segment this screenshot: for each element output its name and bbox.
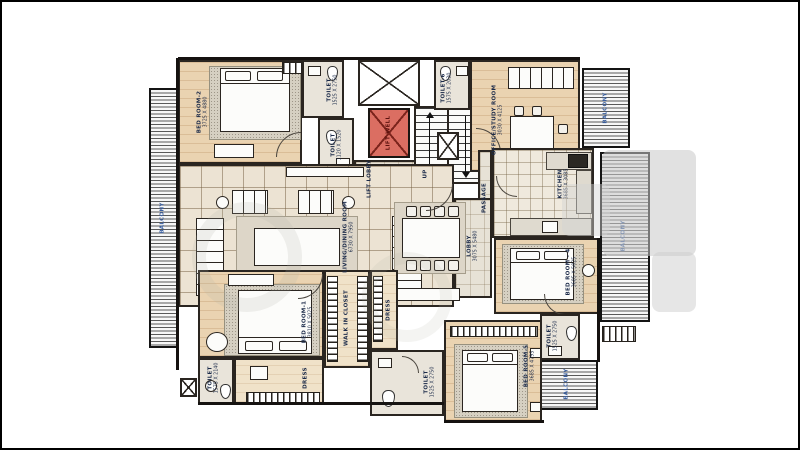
wardrobe-icon xyxy=(373,276,383,342)
dresser-icon xyxy=(250,366,268,380)
armchair-icon xyxy=(298,190,334,214)
pillow-icon xyxy=(245,341,273,351)
room-toilet-bl xyxy=(198,358,234,404)
watermark-shape xyxy=(652,252,696,312)
room-bedroom-4 xyxy=(494,238,600,314)
room-toilet-6 xyxy=(434,60,470,110)
toilet-icon xyxy=(220,384,231,399)
pouf-icon xyxy=(582,264,595,277)
bed-icon xyxy=(220,68,290,132)
room-bedroom-2 xyxy=(178,60,302,164)
room-kitchen xyxy=(492,148,594,238)
wall-right xyxy=(597,238,600,362)
duct-shaft-xbox xyxy=(358,60,420,106)
tv-console-icon xyxy=(286,167,364,177)
dining-chair-icon xyxy=(448,206,459,217)
pillow-icon xyxy=(492,353,513,362)
lift-well xyxy=(368,108,410,158)
kitchen-tall-unit xyxy=(576,170,592,214)
stove-icon xyxy=(568,154,588,168)
dining-table-icon xyxy=(402,218,460,258)
room-toilet-bc xyxy=(370,350,444,416)
sink-icon xyxy=(456,66,468,76)
room-toilet-r xyxy=(540,314,580,360)
arrow-down-icon xyxy=(462,172,470,178)
bed-icon xyxy=(510,248,574,300)
pillow-icon xyxy=(257,71,283,81)
stair-landing-xbox xyxy=(437,132,459,160)
chair-icon xyxy=(514,106,524,116)
wardrobe-icon xyxy=(450,326,538,337)
pillow-icon xyxy=(225,71,251,81)
room-bedroom-5 xyxy=(444,320,542,422)
wall-bottom-left xyxy=(198,402,444,405)
sofa-icon xyxy=(508,67,574,89)
bed-line xyxy=(221,83,289,84)
bed-icon xyxy=(238,290,312,354)
side-table-icon xyxy=(530,402,541,412)
pillow-icon xyxy=(467,353,488,362)
door-arc xyxy=(544,294,565,315)
duct-xbox xyxy=(180,378,197,397)
desk-icon xyxy=(510,116,554,150)
pillow-icon xyxy=(516,251,540,260)
room-bedroom-1 xyxy=(198,270,324,358)
toilet-icon xyxy=(327,66,338,81)
wall-left xyxy=(176,58,179,370)
bed-line xyxy=(511,262,573,263)
armchair-icon xyxy=(206,332,228,352)
balcony-top-right xyxy=(582,68,630,148)
bench-icon xyxy=(214,144,254,158)
bed-line xyxy=(463,364,517,365)
sink-icon xyxy=(542,221,558,233)
sink-icon xyxy=(548,346,562,356)
ac-ledge-unit xyxy=(602,326,636,342)
room-walkin-closet xyxy=(324,270,370,368)
dining-chair-icon xyxy=(406,206,417,217)
bench-icon xyxy=(228,274,274,286)
floor-plan-canvas: BED ROOM-2 3725 X 4880 TOILET 1525 X 275… xyxy=(0,0,800,450)
stair-arrow-line xyxy=(465,116,466,174)
coffee-table-icon xyxy=(254,228,340,266)
wall-bottom-right xyxy=(444,420,544,423)
side-table-icon xyxy=(342,196,355,209)
toilet-icon xyxy=(440,66,451,81)
balcony-bottom xyxy=(540,360,598,410)
wardrobe-icon xyxy=(327,276,338,362)
toilet-icon xyxy=(566,326,577,341)
wall-top xyxy=(178,57,580,60)
side-table-icon xyxy=(216,196,229,209)
pillow-icon xyxy=(544,251,568,260)
dining-chair-icon xyxy=(448,260,459,271)
armchair-icon xyxy=(232,190,268,214)
wardrobe-icon xyxy=(282,62,302,74)
bed-line xyxy=(239,337,311,338)
chair-icon xyxy=(532,106,542,116)
sink-icon xyxy=(378,358,392,368)
balcony-right xyxy=(600,152,650,322)
sink-icon xyxy=(308,66,321,76)
chair-icon xyxy=(558,124,568,134)
room-dress-2 xyxy=(370,270,398,350)
door-arc xyxy=(402,356,419,373)
arrow-up-icon xyxy=(426,112,434,118)
pillow-icon xyxy=(279,341,307,351)
dining-chair-icon xyxy=(434,260,445,271)
room-toilet-top xyxy=(302,60,344,118)
balcony-left xyxy=(149,88,178,348)
room-dress-1 xyxy=(234,358,324,404)
door-arc xyxy=(496,176,517,197)
toilet-icon xyxy=(326,130,337,145)
sink-icon xyxy=(205,380,217,392)
wardrobe-icon xyxy=(357,276,368,362)
dining-chair-icon xyxy=(420,260,431,271)
bed-icon xyxy=(462,350,518,412)
dining-chair-icon xyxy=(406,260,417,271)
